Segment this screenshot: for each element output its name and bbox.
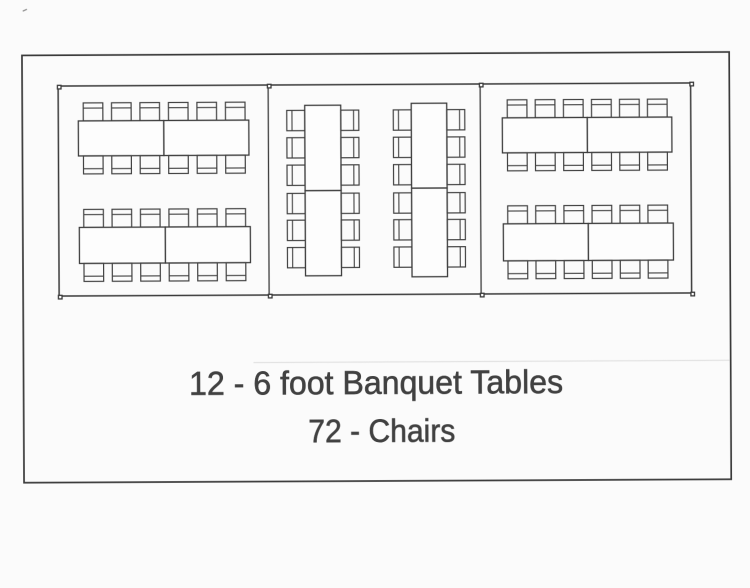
svg-text:72 - Chairs: 72 - Chairs — [308, 413, 455, 450]
svg-text:12 - 6 foot Banquet Tables: 12 - 6 foot Banquet Tables — [189, 363, 563, 402]
